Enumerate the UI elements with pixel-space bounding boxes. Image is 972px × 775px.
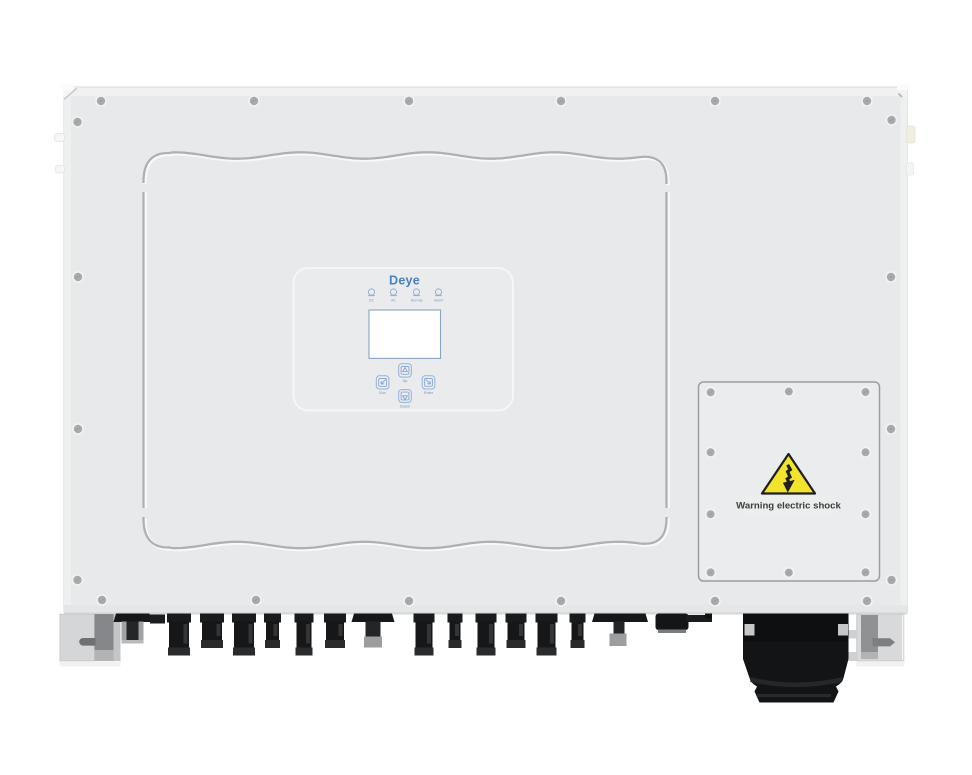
- svg-text:Warning electric shock: Warning electric shock: [736, 501, 841, 512]
- svg-text:Down: Down: [400, 405, 410, 409]
- svg-text:DC: DC: [369, 299, 375, 303]
- svg-text:Normal: Normal: [411, 299, 423, 303]
- svg-text:Enter: Enter: [424, 391, 434, 395]
- svg-text:Esc: Esc: [379, 391, 385, 395]
- svg-text:AC: AC: [391, 299, 396, 303]
- svg-text:Alarm: Alarm: [434, 299, 443, 303]
- svg-text:Deye: Deye: [389, 274, 420, 288]
- svg-text:Up: Up: [403, 379, 408, 383]
